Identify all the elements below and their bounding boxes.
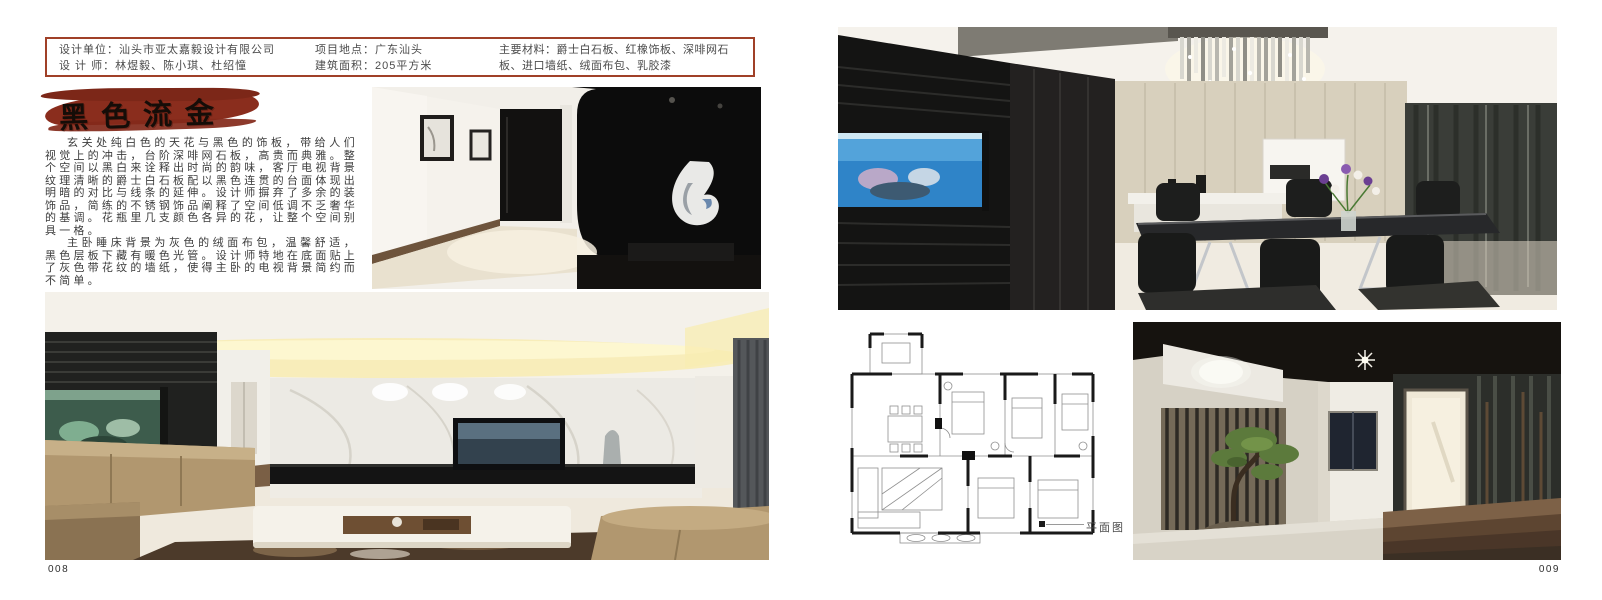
project-info-box: 设计单位：汕头市亚太嘉毅设计有限公司 设 计 师：林煜毅、陈小琪、杜绍憧 项目地…: [45, 37, 755, 77]
dining-room-photo-illustration: [838, 27, 1557, 310]
article-title-block: 黑色流金: [45, 86, 265, 136]
article-title: 黑色流金: [58, 89, 227, 137]
hallway-photo-illustration: [372, 87, 761, 289]
foyer-photo: [1133, 322, 1561, 560]
floor-plan-drawing: [840, 328, 1105, 546]
info-column-project: 项目地点：广东汕头 建筑面积：205平方米: [315, 42, 432, 74]
materials-line: 主要材料：爵士白石板、红橡饰板、深啡网石板、进口墙纸、绒面布包、乳胶漆: [499, 42, 747, 74]
living-room-photo: [45, 292, 769, 560]
dining-room-photo: [838, 27, 1557, 310]
article-body: 玄关处纯白色的天花与黑色的饰板，带给人们视觉上的冲击，台阶深啡网石板，高贵而典雅…: [45, 137, 358, 287]
page-number-right: 009: [1498, 564, 1560, 575]
area-line: 建筑面积：205平方米: [315, 58, 432, 74]
book-spread: 设计单位：汕头市亚太嘉毅设计有限公司 设 计 师：林煜毅、陈小琪、杜绍憧 项目地…: [0, 0, 1602, 600]
floor-plan-illustration: [840, 328, 1105, 546]
living-room-photo-illustration: [45, 292, 769, 560]
article-paragraph: 玄关处纯白色的天花与黑色的饰板，带给人们视觉上的冲击，台阶深啡网石板，高贵而典雅…: [45, 137, 358, 237]
hallway-photo: [372, 87, 761, 289]
location-line: 项目地点：广东汕头: [315, 42, 432, 58]
page-number-left: 008: [48, 564, 69, 575]
design-unit-line: 设计单位：汕头市亚太嘉毅设计有限公司: [59, 42, 275, 58]
floor-plan-caption: 平面图: [1086, 519, 1125, 535]
info-column-design: 设计单位：汕头市亚太嘉毅设计有限公司 设 计 师：林煜毅、陈小琪、杜绍憧: [59, 42, 275, 74]
article-paragraph: 主卧睡床背景为灰色的绒面布包，温馨舒适，黑色层板下藏有暖色光管。设计师特地在底面…: [45, 237, 358, 287]
floor-plan-leader-line: [1046, 524, 1084, 525]
designers-line: 设 计 师：林煜毅、陈小琪、杜绍憧: [59, 58, 275, 74]
foyer-photo-illustration: [1133, 322, 1561, 560]
